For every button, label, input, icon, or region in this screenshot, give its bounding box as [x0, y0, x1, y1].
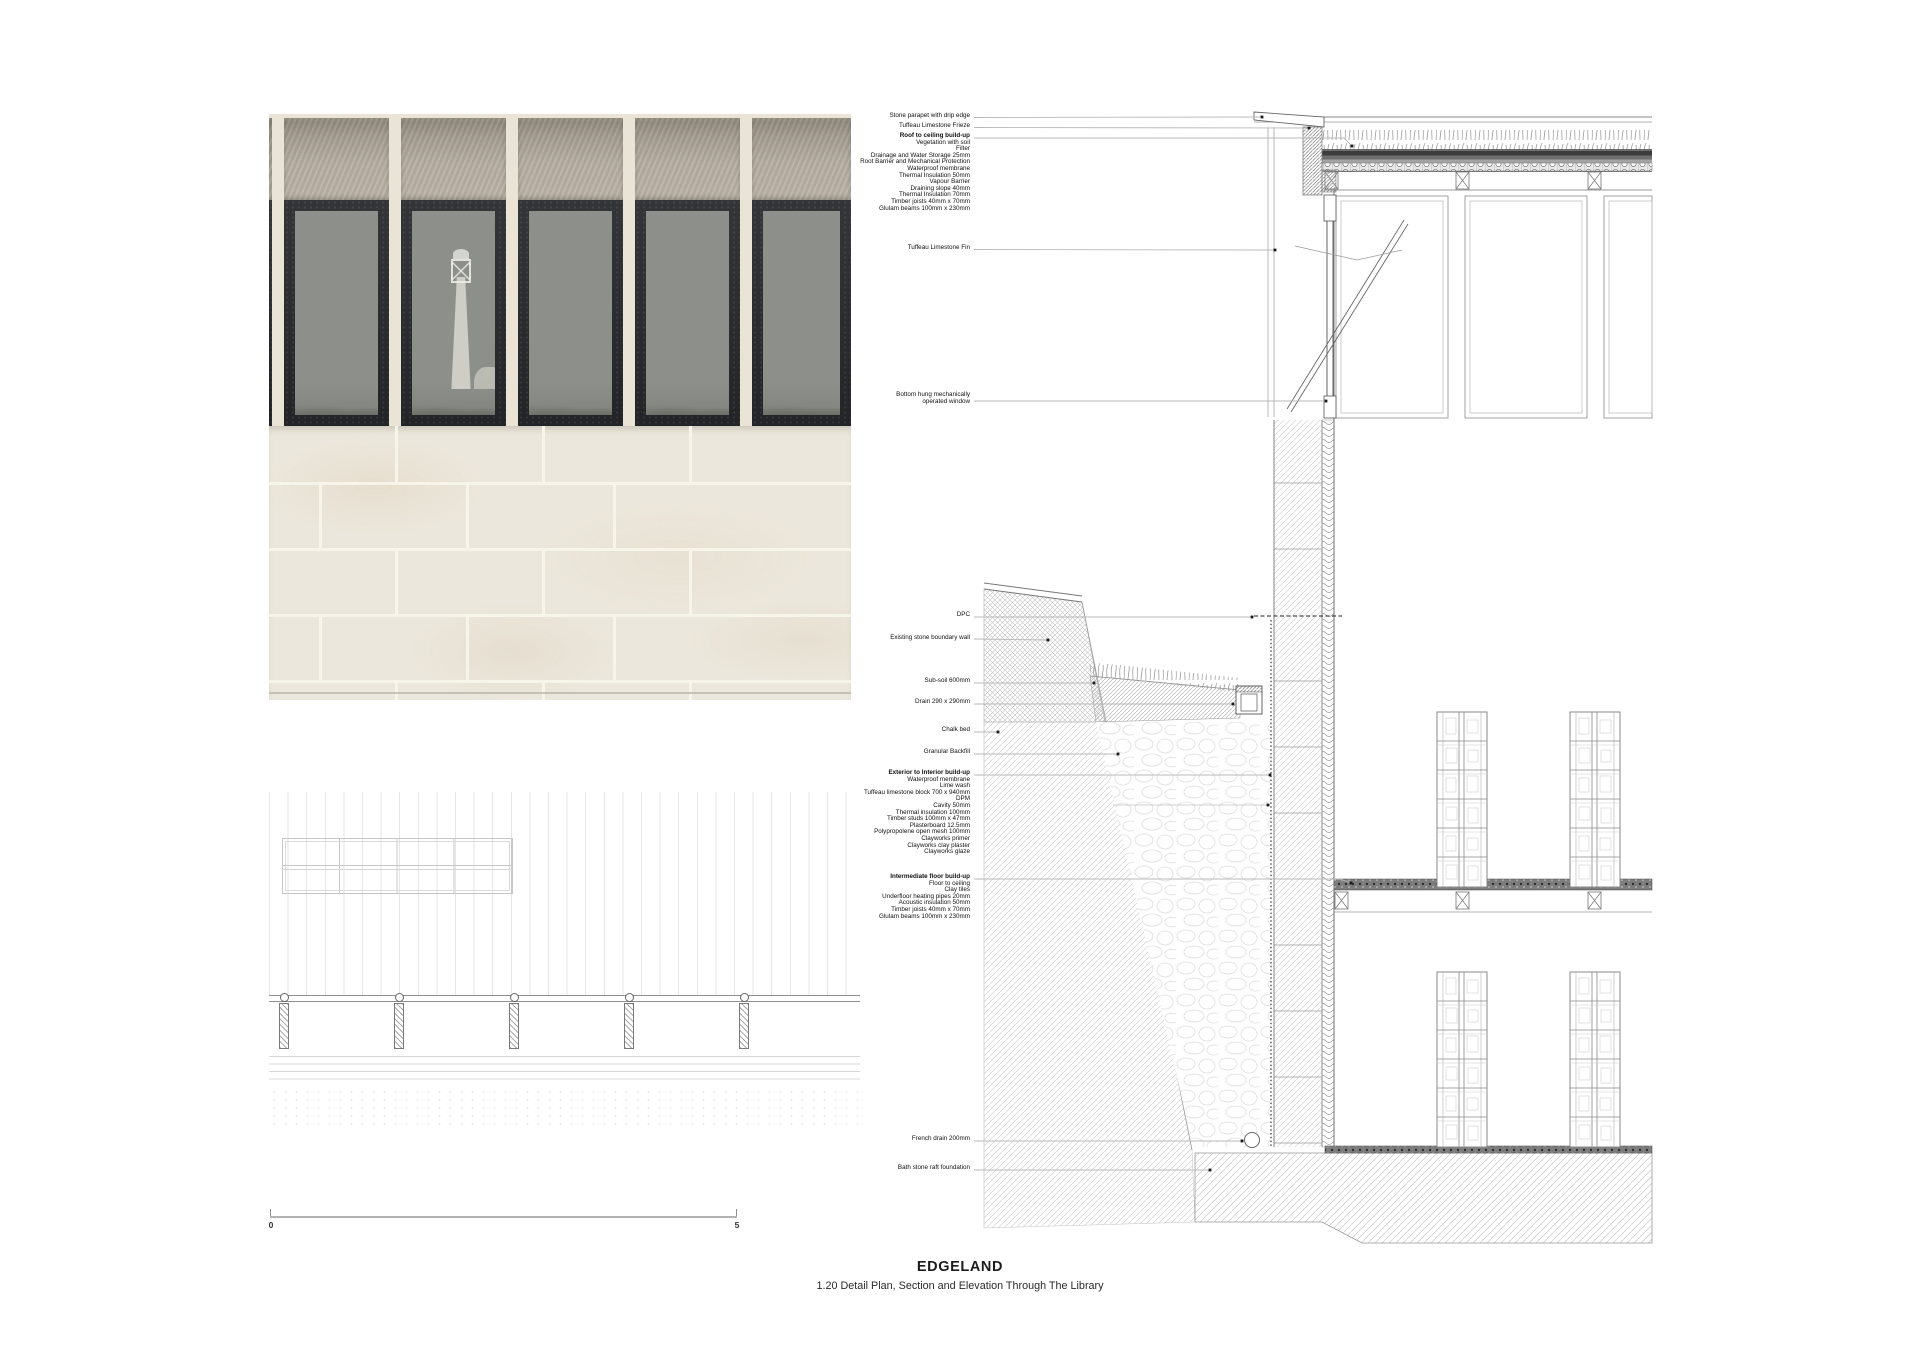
annotation-heading: Existing stone boundary wall [670, 635, 970, 642]
annotation-boundary-wall: Existing stone boundary wall [670, 635, 970, 642]
annotation-raft-foundation: Bath stone raft foundation [670, 1165, 970, 1172]
annotation-granular-backfill: Granular Backfill [670, 749, 970, 756]
project-title: EDGELAND [710, 1259, 1210, 1275]
annotation-heading: Drain 290 x 290mm [670, 699, 970, 706]
annotation-item: Clayworks glaze [670, 849, 970, 856]
annotation-heading: Granular Backfill [670, 749, 970, 756]
drawing-title: 1.20 Detail Plan, Section and Elevation … [660, 1280, 1260, 1292]
annotation-limestone-frieze: Tuffeau Limestone Frieze [670, 123, 970, 130]
facade-window-glass [529, 211, 612, 415]
annotation-heading: French drain 200mm [670, 1136, 970, 1143]
roof-group [1254, 112, 1652, 417]
facade-window-glass [646, 211, 729, 415]
annotation-roof-buildup: Roof to ceiling build-upVegetation with … [670, 133, 970, 212]
facade-window-frame [401, 200, 506, 426]
lighthouse-reflection [446, 277, 476, 389]
annotation-heading: DPC [670, 612, 970, 619]
glass-horizon-reflection [529, 381, 612, 415]
glass-horizon-reflection [763, 381, 840, 415]
lighthouse-reflection [453, 249, 469, 259]
glass-horizon-reflection [295, 381, 378, 415]
annotation-heading: Stone parapet with drip edge [670, 113, 970, 120]
annotation-item: Glulam beams 100mm x 230mm [670, 914, 970, 921]
facade-window-glass [763, 211, 840, 415]
facade-window-frame [752, 200, 851, 426]
lighthouse-reflection [451, 259, 471, 283]
parapet-wall [1303, 127, 1322, 195]
annotation-heading: Sub-soil 600mm [670, 678, 970, 685]
annotation-item: Tuffeau limestone block 700 x 940mm [670, 790, 970, 797]
lighthouse-reflection [474, 367, 495, 389]
parapet-cap [1254, 112, 1324, 127]
annotation-chalk-bed: Chalk bed [670, 727, 970, 734]
annotation-item: Thermal Insulation 50mm [670, 173, 970, 180]
annotation-heading: Bath stone raft foundation [670, 1165, 970, 1172]
annotation-drain: Drain 290 x 290mm [670, 699, 970, 706]
annotation-sub-soil: Sub-soil 600mm [670, 678, 970, 685]
clerestory-group [1287, 195, 1652, 418]
annotation-heading: Tuffeau Limestone Frieze [670, 123, 970, 130]
annotation-dpc: DPC [670, 612, 970, 619]
annotation-item: Vegetation with soil [670, 140, 970, 147]
annotation-heading: Intermediate floor build-up [670, 874, 970, 881]
foundation-group [1195, 1153, 1652, 1243]
annotation-stone-parapet: Stone parapet with drip edge [670, 113, 970, 120]
annotation-french-drain: French drain 200mm [670, 1136, 970, 1143]
drawing-sheet: 0 5 [0, 0, 1920, 1356]
annotation-heading: Chalk bed [670, 727, 970, 734]
ground-group [984, 583, 1271, 1228]
green-roof-vegetation [1322, 130, 1652, 150]
annotation-intermediate-floor-buildup: Intermediate floor build-upFloor to ceil… [670, 874, 970, 920]
bookshelves-group [1437, 712, 1620, 1147]
glass-horizon-reflection [646, 381, 729, 415]
annotation-item: Floor to ceiling [670, 881, 970, 888]
facade-window-frame [635, 200, 740, 426]
annotation-item: Waterproof membrane [670, 777, 970, 784]
facade-window-glass [295, 211, 378, 415]
facade-window-glass [412, 211, 495, 415]
annotation-exterior-interior-buildup: Exterior to Interior build-upWaterproof … [670, 770, 970, 856]
facade-window-frame [518, 200, 623, 426]
annotation-item: DPM [670, 796, 970, 803]
french-drain-pipe [1245, 1133, 1260, 1148]
facade-window-frame [284, 200, 389, 426]
